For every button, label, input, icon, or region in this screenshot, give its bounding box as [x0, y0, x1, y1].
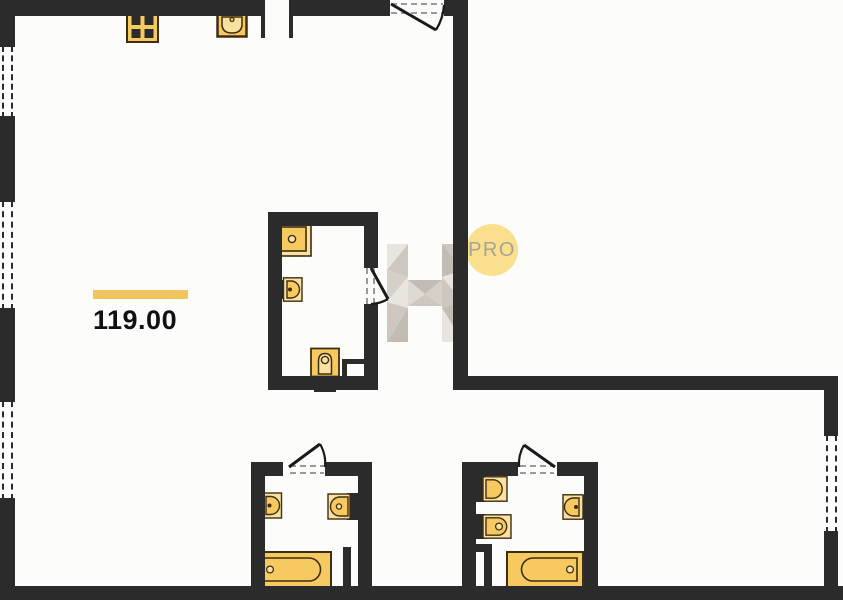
- entrance-door-icon: [391, 4, 444, 30]
- vent-shaft-left-edge: [261, 0, 265, 38]
- wall-top-mid: [293, 0, 390, 16]
- center-bath-wall-top: [268, 212, 378, 226]
- bathtub-icon: [256, 551, 332, 589]
- wall-left-4: [0, 499, 15, 600]
- right-bath-door-icon: [519, 445, 555, 473]
- area-underline: [93, 290, 188, 299]
- center-bath-door-icon: [367, 268, 388, 304]
- right-bath-partition-v: [484, 544, 492, 600]
- center-bath-duct-left: [342, 359, 347, 390]
- wall-left-1: [0, 0, 15, 47]
- floor-plan: PRO 119.00: [0, 0, 843, 600]
- washbasin-icon: [280, 277, 303, 302]
- wall-top-left: [0, 0, 262, 16]
- wall-far-right-upper: [824, 383, 838, 436]
- left-bath-door-icon: [289, 444, 325, 473]
- center-bath-wall-bottom: [268, 376, 378, 390]
- wall-mid-horizontal: [453, 376, 838, 390]
- pro-badge-label: PRO: [468, 239, 516, 262]
- wall-left-2: [0, 117, 15, 202]
- watermark-h-logo: [387, 244, 463, 342]
- area-value: 119.00: [93, 305, 188, 336]
- window-cap: [0, 308, 15, 312]
- window-cap: [0, 498, 15, 502]
- window-cap: [0, 116, 15, 120]
- window-cap: [824, 432, 838, 436]
- window-cap: [0, 43, 15, 47]
- center-bath-duct-top: [342, 359, 378, 364]
- washbasin-icon: [560, 494, 587, 520]
- bidet-icon: [474, 514, 512, 539]
- center-bath-wall-left: [268, 212, 282, 390]
- bathtub-icon: [506, 551, 584, 589]
- window-cap: [0, 198, 15, 202]
- right-bath-wall-left: [462, 462, 476, 600]
- toilet-icon: [474, 476, 508, 502]
- right-bath-wall-right: [584, 462, 598, 600]
- wall-left-3: [0, 309, 15, 402]
- wall-right-upper: [453, 0, 468, 390]
- window-left-2: [2, 201, 13, 310]
- area-label: 119.00: [93, 290, 188, 336]
- window-right: [826, 435, 837, 533]
- left-bath-partition: [343, 547, 351, 586]
- pro-badge: PRO: [466, 224, 518, 276]
- window-left-3: [2, 401, 13, 500]
- center-bath-wall-right-upper: [364, 212, 378, 268]
- window-cap: [0, 398, 15, 402]
- wall-bottom: [0, 586, 843, 600]
- toilet-icon: [327, 493, 360, 520]
- center-bath-wall-right-lower: [364, 304, 378, 390]
- window-left-1: [2, 46, 13, 118]
- window-cap: [824, 531, 838, 535]
- left-bath-wall-left: [251, 462, 265, 600]
- left-bath-wall-right: [358, 462, 372, 600]
